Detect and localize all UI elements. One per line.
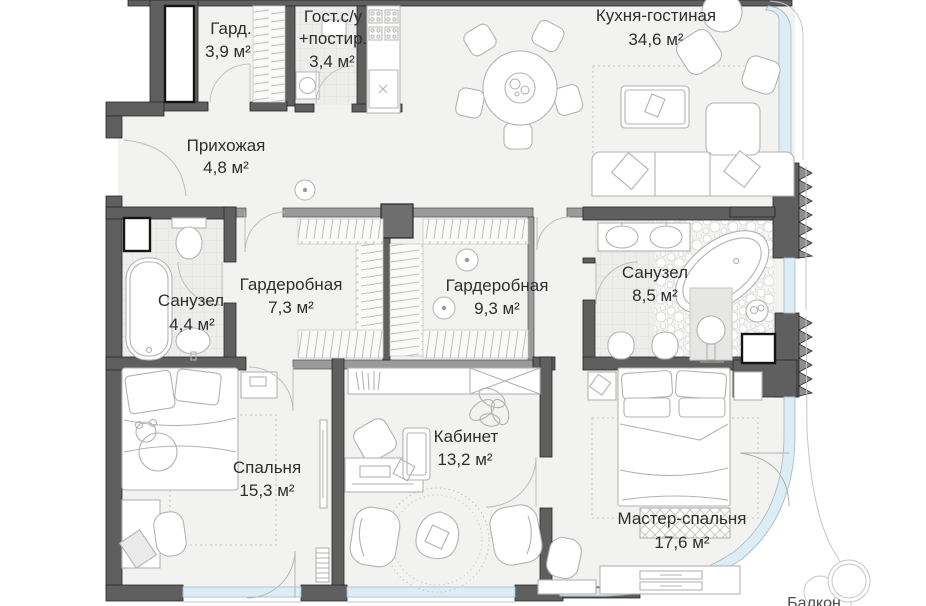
label-wardrobe1-area: 7,3 м²: [268, 298, 314, 317]
floor-plan: Гард. 3,9 м² Гост.с/у +постир. 3,4 м² Ку…: [0, 0, 926, 606]
label-wardrobe1-name: Гардеробная: [240, 275, 343, 294]
radiator: [316, 548, 329, 582]
label-guestwc-name1: Гост.с/у: [304, 7, 363, 26]
bidet: [652, 332, 678, 359]
nightstand: [734, 372, 762, 400]
label-wardrobe2-name: Гардеробная: [446, 276, 549, 295]
kitchen-unit: [367, 6, 400, 113]
label-bath2-area: 8,5 м²: [632, 286, 678, 305]
label-hallway-name: Прихожая: [187, 136, 266, 155]
label-bedroom-area: 15,3 м²: [239, 481, 294, 500]
label-gard-area: 3,9 м²: [205, 42, 251, 61]
label-office-name: Кабинет: [434, 427, 499, 446]
shelf: [348, 368, 470, 394]
label-master-name: Мастер-спальня: [617, 509, 746, 528]
coffee-table: [621, 86, 689, 128]
label-guestwc-area: 3,4 м²: [309, 52, 355, 71]
label-guestwc-name2: +постир.: [299, 29, 368, 48]
label-balcony-name: Балкон: [787, 595, 841, 606]
vanity-table: [538, 580, 596, 594]
label-bath1-area: 4,4 м²: [169, 315, 215, 334]
glass-bath-window: [784, 258, 795, 313]
glass-bottom-1: [183, 587, 301, 597]
label-kitchen-name: Кухня-гостиная: [596, 6, 716, 25]
label-hallway-area: 4,8 м²: [203, 158, 249, 177]
label-bedroom-name: Спальня: [233, 458, 301, 477]
label-master-area: 17,6 м²: [654, 533, 709, 552]
label-bath1-name: Санузел: [158, 291, 224, 310]
dresser: [600, 566, 740, 594]
label-wardrobe2-area: 9,3 м²: [474, 299, 520, 318]
floor-plan-page: Гард. 3,9 м² Гост.с/у +постир. 3,4 м² Ку…: [0, 0, 926, 606]
label-kitchen-area: 34,6 м²: [628, 30, 683, 49]
label-bath2-name: Санузел: [622, 263, 688, 282]
glass-bottom-2: [347, 587, 515, 597]
label-gard-name: Гард.: [210, 19, 251, 38]
pedestal-sink: [697, 316, 725, 344]
toilet: [608, 332, 634, 359]
nightstand: [241, 372, 277, 398]
label-office-area: 13,2 м²: [437, 450, 492, 469]
